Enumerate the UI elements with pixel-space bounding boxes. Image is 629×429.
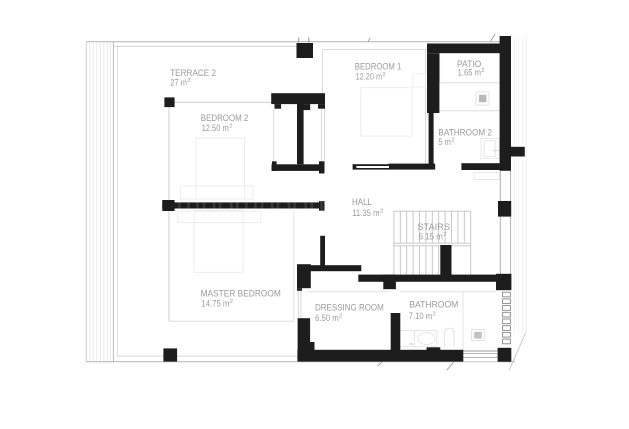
svg-text:2: 2 [230,299,233,305]
svg-text:BEDROOM 2: BEDROOM 2 [201,113,249,123]
svg-text:7.10 m: 7.10 m [409,311,432,321]
svg-text:2: 2 [451,138,454,144]
svg-text:DRESSING ROOM: DRESSING ROOM [315,303,384,313]
svg-text:BEDROOM 1: BEDROOM 1 [355,62,402,72]
svg-text:2: 2 [443,232,446,238]
svg-text:27 m: 27 m [170,78,187,88]
svg-text:12.20 m: 12.20 m [356,71,383,81]
svg-text:11.35 m: 11.35 m [352,208,379,218]
svg-text:2: 2 [383,72,386,78]
svg-text:12.50 m: 12.50 m [202,123,229,133]
svg-text:2: 2 [433,312,436,318]
svg-text:6.50 m: 6.50 m [315,313,339,323]
svg-text:2: 2 [481,68,484,74]
svg-text:2: 2 [380,209,383,215]
svg-text:14.75 m: 14.75 m [201,298,229,308]
svg-text:1.65 m: 1.65 m [458,68,481,78]
svg-text:6.15 m: 6.15 m [419,231,443,241]
svg-text:2: 2 [339,314,342,320]
svg-text:2: 2 [229,124,232,130]
svg-text:MASTER BEDROOM: MASTER BEDROOM [201,289,281,299]
svg-text:HALL: HALL [352,197,372,207]
svg-text:2: 2 [187,78,190,84]
svg-text:5 m: 5 m [438,137,450,147]
svg-text:BATHROOM: BATHROOM [409,300,458,310]
svg-text:mnomnoon: mnomnoon [176,183,325,224]
